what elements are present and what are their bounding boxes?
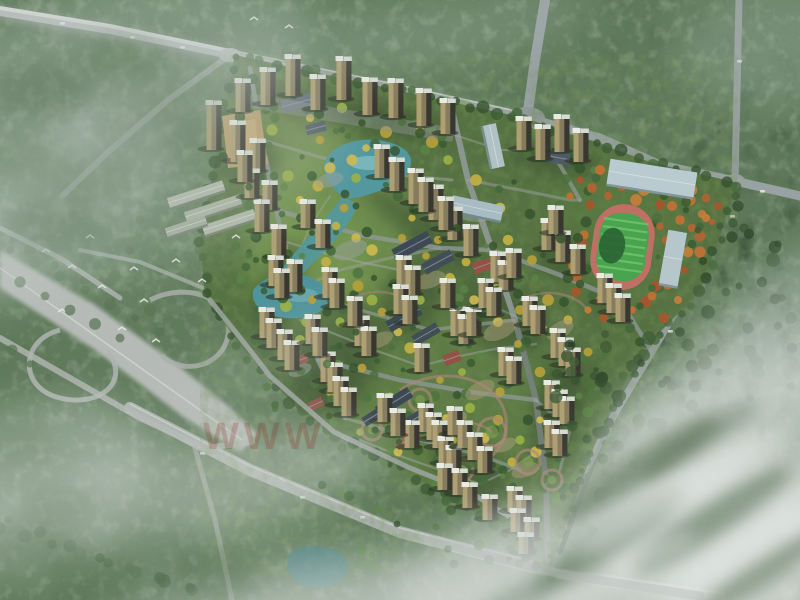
svg-text:WWW: WWW xyxy=(203,416,326,458)
